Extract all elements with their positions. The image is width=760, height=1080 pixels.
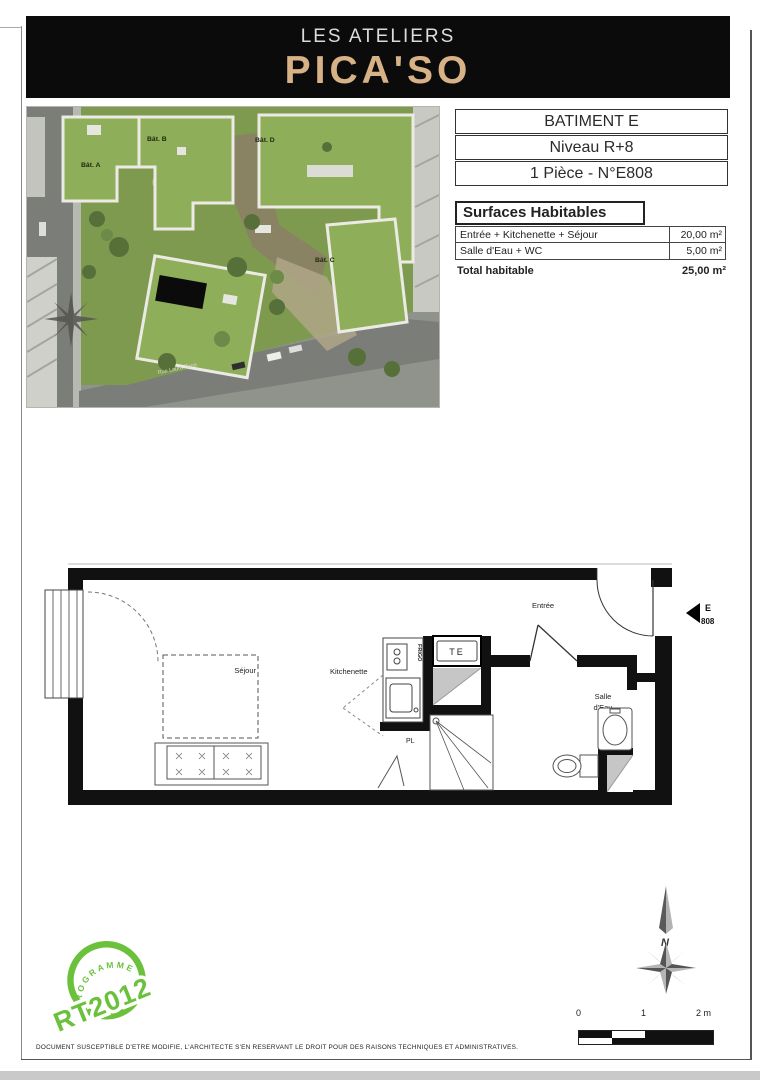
salle-deau-label-1: Salle bbox=[595, 692, 612, 701]
roof-bat-c bbox=[327, 219, 407, 332]
kitchen-door-swing bbox=[343, 675, 383, 736]
unit-marker-number: 808 bbox=[701, 617, 715, 626]
sejour-zone: Séjour bbox=[163, 655, 258, 738]
page-border-bottom bbox=[21, 1059, 752, 1060]
surfaces-total-row: Total habitable 25,00 m² bbox=[455, 262, 727, 277]
washbasin-icon bbox=[598, 708, 632, 750]
entree-label: Entrée bbox=[532, 601, 554, 610]
surface-value: 20,00 m² bbox=[669, 226, 726, 243]
shower bbox=[430, 715, 493, 790]
roof-bat-e bbox=[137, 256, 265, 378]
brand-line1: LES ATELIERS bbox=[26, 26, 730, 48]
floor-plan: Séjour FRIGO Kitchenette TE PL Entrée bbox=[40, 560, 730, 810]
compass-rose: N bbox=[624, 884, 708, 1006]
surfaces-title: Surfaces Habitables bbox=[455, 201, 645, 225]
aerial-site-photo: Rue Laura Zana Bât. A Bât. B Bât. D Bât.… bbox=[26, 106, 440, 408]
hob-icon bbox=[387, 644, 407, 670]
label-bat-d: Bât. D bbox=[255, 137, 275, 144]
screen-bottom-strip bbox=[0, 1071, 760, 1080]
label-bat-b: Bât. B bbox=[147, 136, 167, 143]
entry-door bbox=[597, 568, 653, 636]
duct-shaft-2 bbox=[607, 755, 633, 792]
floorplan-sheet: { "header": { "brand_line1": "LES ATELIE… bbox=[0, 0, 760, 1080]
north-needle bbox=[659, 886, 673, 934]
unit-marker-building: E bbox=[705, 603, 711, 613]
scale-tick-0: 0 bbox=[576, 1008, 581, 1018]
scale-bar: 0 1 2 m bbox=[576, 1008, 720, 1048]
page-border-left bbox=[21, 26, 22, 1060]
unit-marker-arrow bbox=[686, 603, 700, 623]
scale-bar-graphic bbox=[578, 1030, 714, 1045]
brand-line2: PICA'SO bbox=[26, 49, 730, 93]
window-swing-arc bbox=[88, 592, 158, 662]
page-border-top-left bbox=[0, 27, 21, 28]
total-label: Total habitable bbox=[455, 262, 670, 277]
info-row-unit: 1 Pièce - N°E808 bbox=[455, 161, 728, 186]
te-box: TE bbox=[433, 636, 481, 666]
footer-disclaimer: DOCUMENT SUSCEPTIBLE D'ETRE MODIFIE, L'A… bbox=[36, 1044, 636, 1051]
total-value: 25,00 m² bbox=[670, 262, 727, 277]
surface-label: Entrée + Kitchenette + Séjour bbox=[455, 226, 670, 243]
window-left bbox=[45, 590, 158, 698]
salle-deau-door bbox=[530, 625, 577, 661]
scale-tick-1: 1 bbox=[641, 1008, 646, 1018]
kitchenette-label: Kitchenette bbox=[330, 667, 368, 676]
wc-icon bbox=[553, 755, 598, 777]
rt2012-stamp: PROGRAMME RT2012 bbox=[28, 928, 198, 1052]
sejour-label: Séjour bbox=[234, 666, 256, 675]
placard-label: PL bbox=[406, 738, 415, 745]
placard-door bbox=[378, 756, 404, 788]
scale-tick-2: 2 m bbox=[696, 1008, 711, 1018]
sofa bbox=[155, 743, 268, 785]
brand-header: LES ATELIERS PICA'SO bbox=[26, 16, 730, 98]
label-bat-c: Bât. C bbox=[315, 257, 335, 264]
te-label: TE bbox=[449, 647, 465, 657]
surface-value: 5,00 m² bbox=[669, 243, 726, 260]
star-points bbox=[636, 942, 696, 994]
label-bat-a: Bât. A bbox=[81, 162, 100, 169]
surfaces-row: Entrée + Kitchenette + Séjour 20,00 m² bbox=[455, 226, 727, 243]
unit-marker: E 808 bbox=[686, 603, 715, 626]
info-row-level: Niveau R+8 bbox=[455, 135, 728, 160]
frigo-label: FRIGO bbox=[416, 644, 422, 662]
surfaces-row: Salle d'Eau + WC 5,00 m² bbox=[455, 243, 727, 260]
duct-shaft-1 bbox=[433, 668, 481, 705]
stamp-main-text: RT2012 bbox=[49, 972, 155, 1038]
kitchenette-block bbox=[343, 638, 423, 736]
surface-label: Salle d'Eau + WC bbox=[455, 243, 670, 260]
page-border-right bbox=[750, 30, 752, 1060]
info-row-building: BATIMENT E bbox=[455, 109, 728, 134]
